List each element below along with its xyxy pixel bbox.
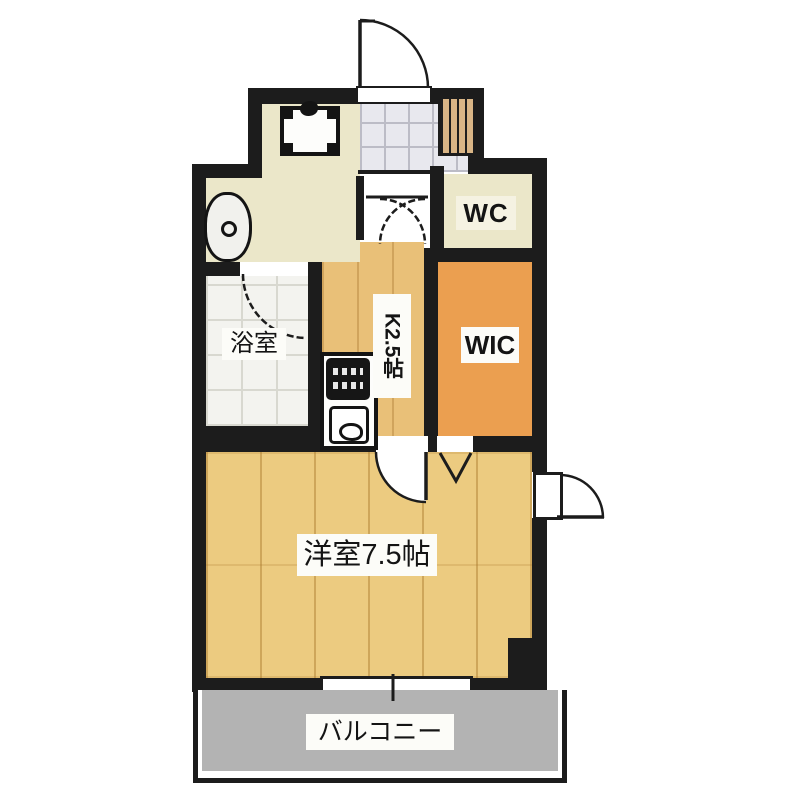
- room-door-opening: [376, 436, 428, 452]
- wic-door-opening: [437, 436, 473, 452]
- entrance-door-icon: [360, 20, 428, 88]
- wc-label-text: WC: [463, 200, 508, 226]
- pan-corner: [327, 110, 336, 119]
- washing-machine-pan: [280, 106, 340, 156]
- faucet-icon: [300, 101, 318, 116]
- pan-corner: [284, 143, 293, 152]
- pan-corner: [284, 110, 293, 119]
- wic-label: WIC: [461, 327, 519, 363]
- stove-text-mark: [333, 368, 363, 375]
- gas-stove: [326, 358, 370, 400]
- wall: [192, 426, 322, 452]
- wall: [532, 158, 547, 472]
- pan-corner: [327, 143, 336, 152]
- wall: [430, 248, 547, 262]
- step-edge: [358, 170, 430, 174]
- western-room-label-text: 洋室7.5帖: [303, 541, 430, 570]
- wall: [356, 176, 364, 240]
- bathroom-label-text: 浴室: [230, 332, 278, 356]
- kitchen-label: K2.5帖: [373, 294, 411, 398]
- wc-label: WC: [456, 196, 516, 230]
- western-room-label: 洋室7.5帖: [297, 534, 437, 576]
- bathroom-door-opening: [240, 262, 308, 276]
- shoe-cabinet: [438, 96, 476, 156]
- hall-doorway-zone: [360, 176, 430, 242]
- balcony: バルコニー: [193, 690, 567, 783]
- sink-drain-icon: [339, 423, 363, 441]
- kitchen-sink: [329, 406, 369, 444]
- kitchen-label-text: K2.5帖: [382, 313, 403, 378]
- service-door-icon: [557, 475, 604, 518]
- bathroom-label: 浴室: [222, 328, 286, 360]
- service-door-leaf: [533, 472, 563, 520]
- wall: [473, 436, 547, 452]
- wall: [248, 88, 262, 176]
- wic-label-text: WIC: [465, 332, 516, 358]
- wall: [192, 262, 240, 276]
- drain-icon: [221, 221, 237, 237]
- floor-plan: バルコニー: [0, 0, 800, 800]
- wall: [428, 436, 437, 452]
- washbasin: [204, 192, 252, 262]
- kitchen-counter: [320, 352, 378, 450]
- entrance-threshold: [356, 86, 432, 104]
- balcony-label-text: バルコニー: [318, 720, 443, 745]
- wall: [424, 248, 438, 452]
- pillar: [508, 638, 547, 690]
- balcony-label: バルコニー: [306, 714, 454, 750]
- stove-text-mark: [333, 382, 363, 389]
